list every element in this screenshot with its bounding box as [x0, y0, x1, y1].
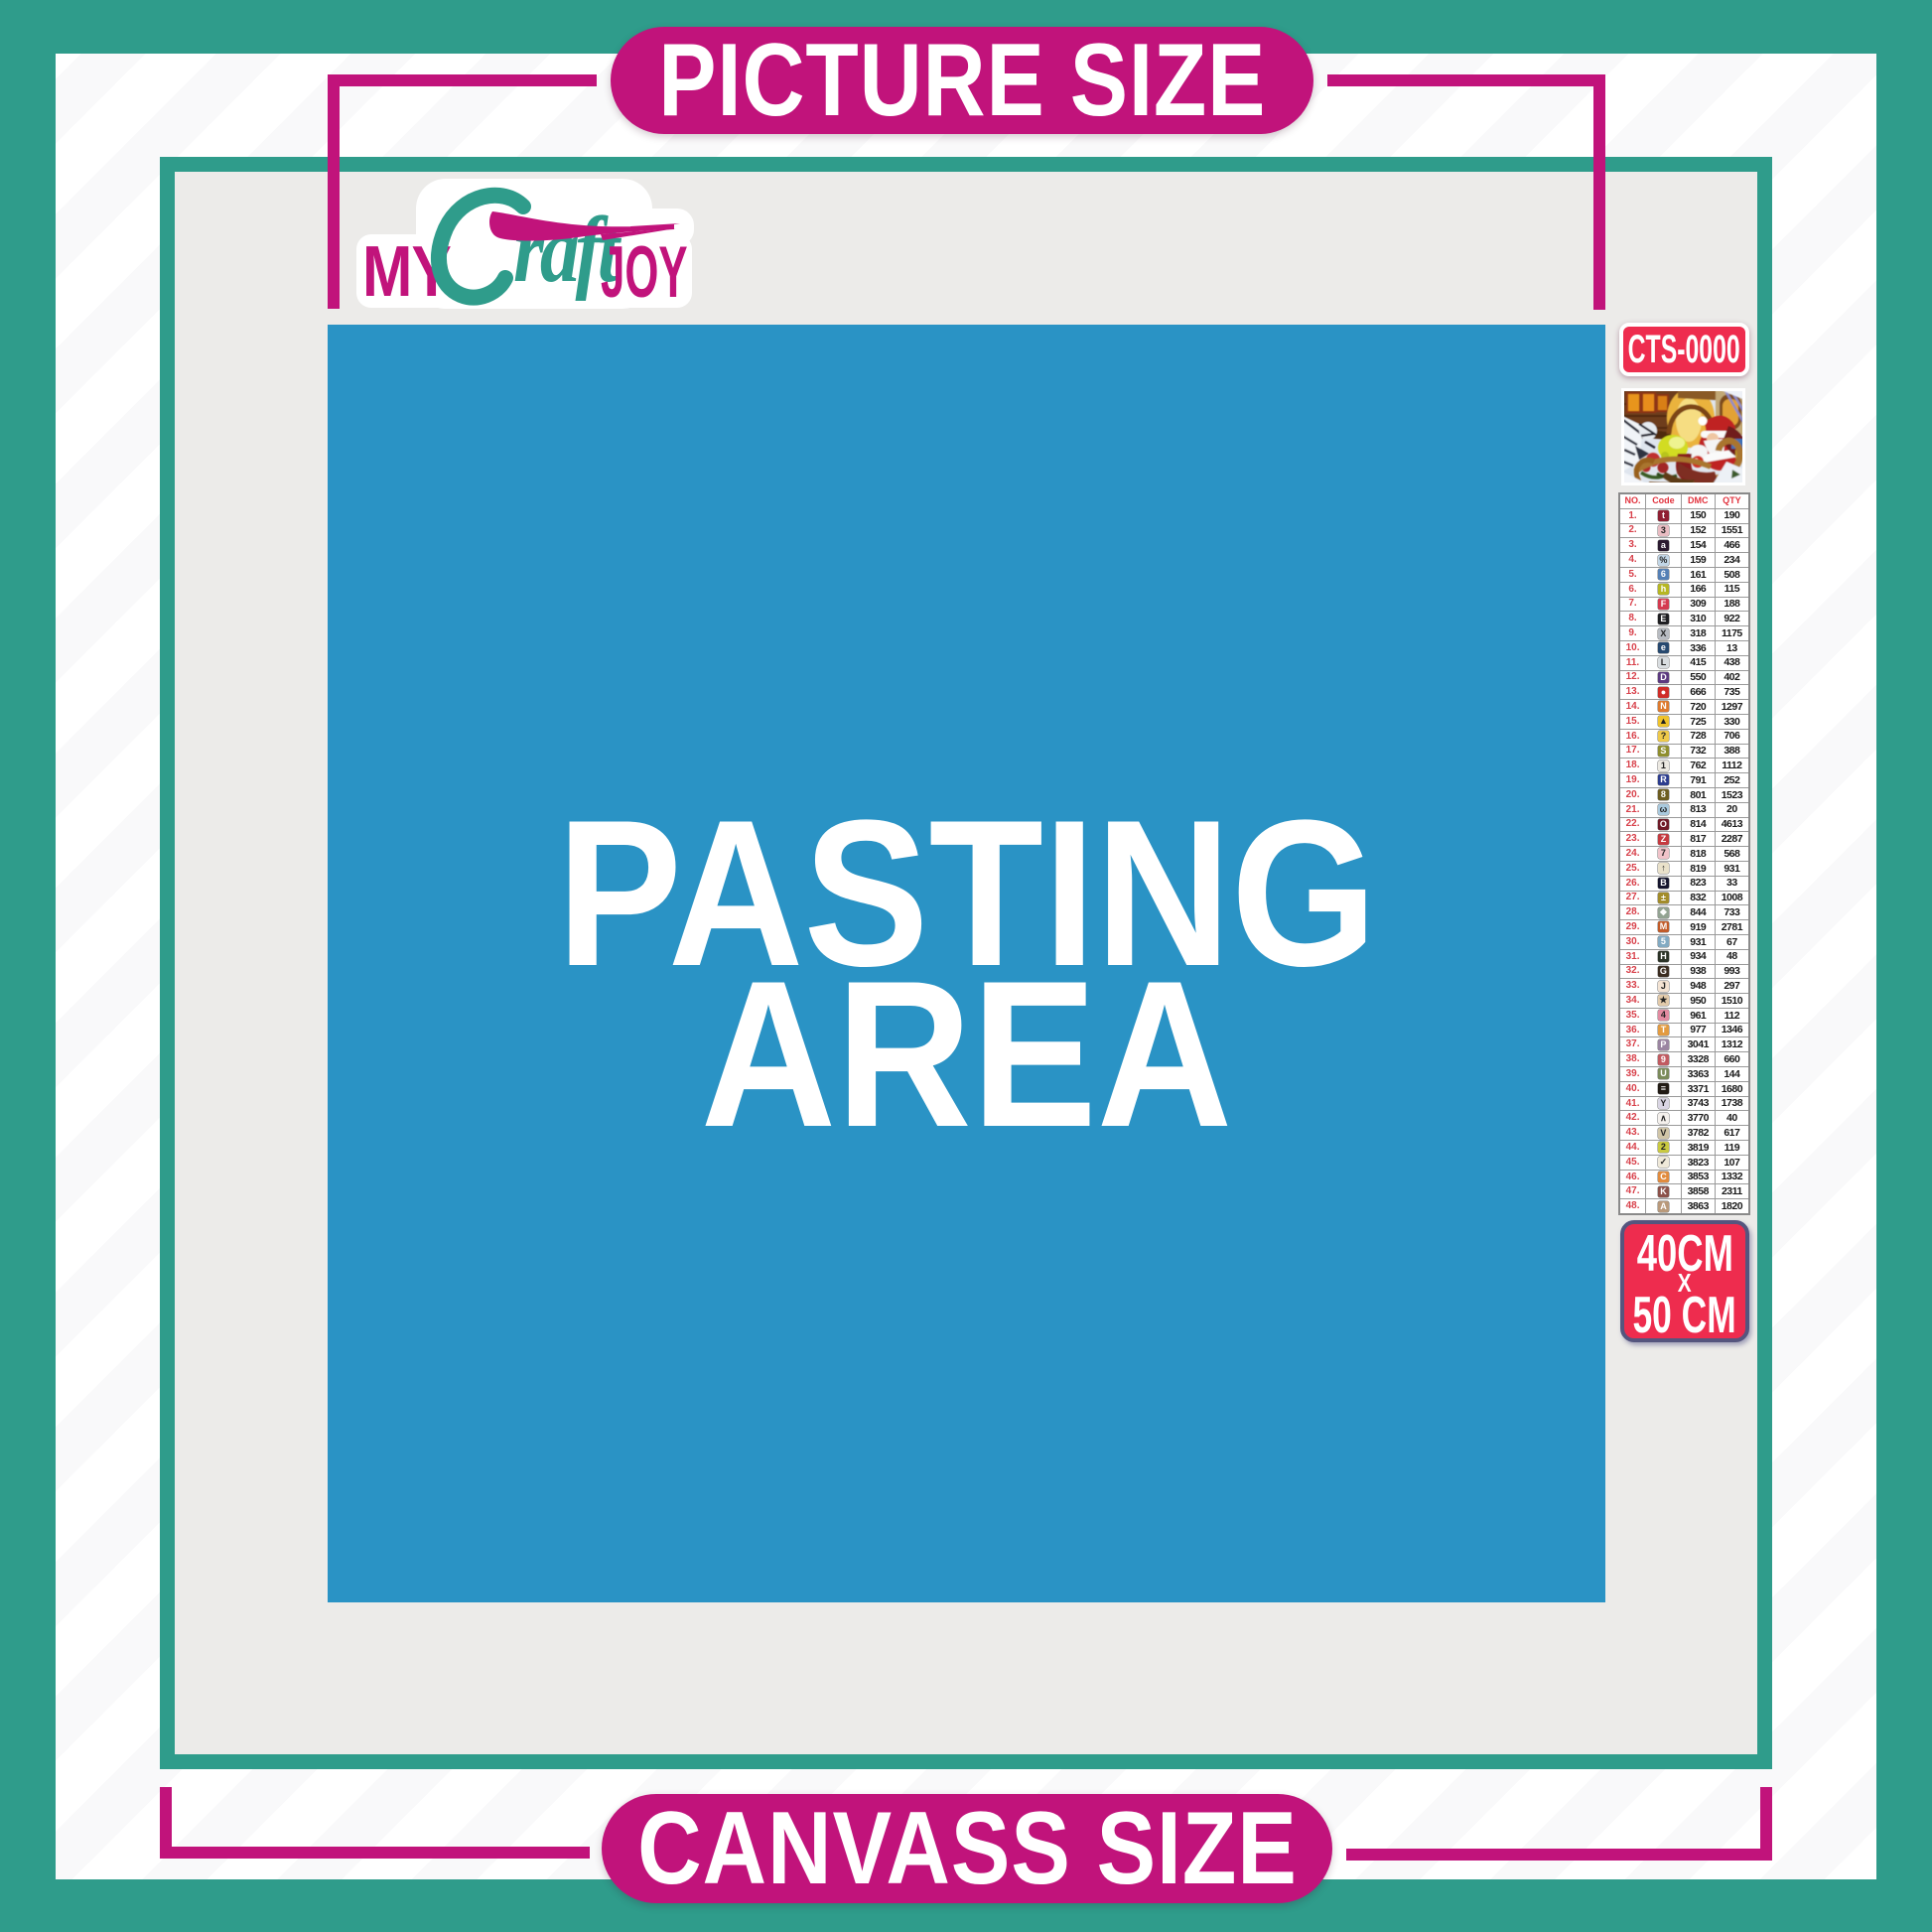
svg-text:JOY: JOY	[601, 232, 688, 310]
